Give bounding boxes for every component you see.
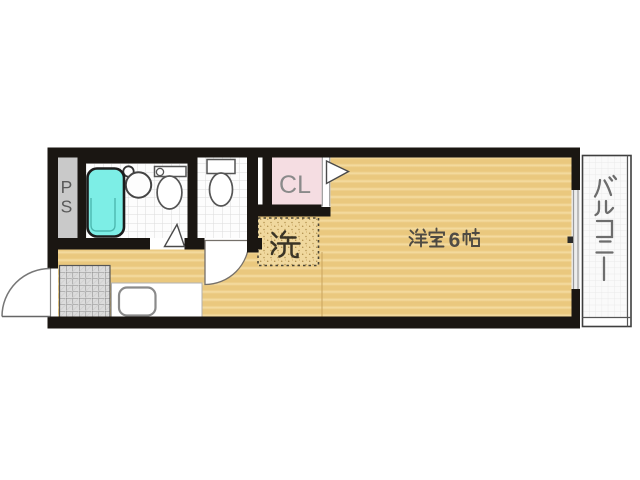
svg-text:6: 6 <box>449 229 461 252</box>
svg-text:S: S <box>61 197 73 217</box>
svg-text:CL: CL <box>279 171 311 199</box>
svg-text:P: P <box>61 177 73 197</box>
